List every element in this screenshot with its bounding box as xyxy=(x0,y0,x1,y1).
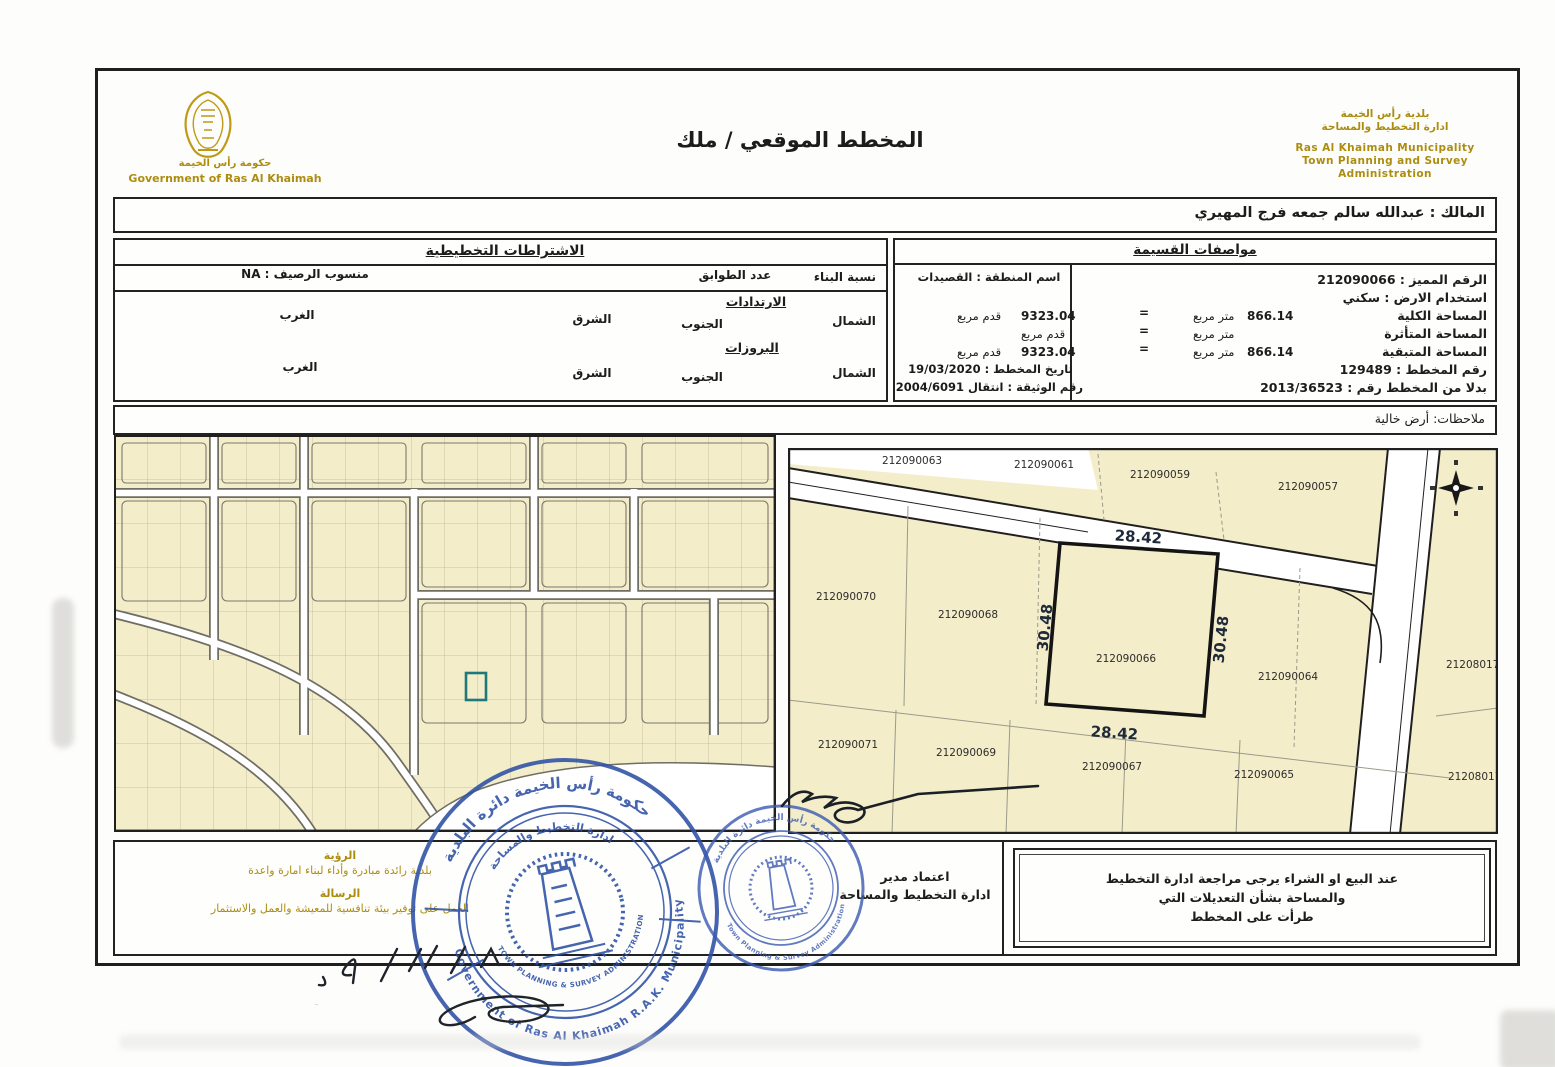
sale-note-line2: والمساحة بشأن التعديلات التي xyxy=(1020,888,1484,907)
remaining-area-label: المساحة المتبقية xyxy=(1382,344,1487,359)
municipality-en1: Ras Al Khaimah Municipality xyxy=(1230,142,1540,155)
owner-bar: المالك : عبدالله سالم جمعه فرج المهيري xyxy=(113,197,1497,233)
plot-212090061: 212090061 xyxy=(1014,459,1074,471)
col-floors: عدد الطوابق xyxy=(675,268,795,282)
municipality-ar1: بلدية رأس الخيمة xyxy=(1230,108,1540,121)
equals-1: = xyxy=(1139,306,1149,320)
plot-specifications-table: مواصفات القسيمة الرقم المميز : 212090066… xyxy=(893,238,1497,402)
municipality-header: بلدية رأس الخيمة ادارة التخطيط والمساحة … xyxy=(1230,108,1540,181)
setback-west: الغرب xyxy=(262,308,332,322)
affected-area-label: المساحة المتأثرة xyxy=(1384,326,1487,341)
subject-plot-highlight xyxy=(1046,543,1218,716)
dim-bottom: 28.42 xyxy=(1090,722,1139,743)
projections-heading: البروزات xyxy=(707,340,797,355)
logo-arabic-text: حكومة رأس الخيمة xyxy=(160,158,290,169)
plan-number: رقم المخطط : 129489 xyxy=(1340,362,1487,377)
sale-note-line3: طرأت على المخطط xyxy=(1020,907,1484,926)
equals-2: = xyxy=(1139,324,1149,338)
notes-bar: ملاحظات: أرض خالية xyxy=(113,405,1497,435)
handwritten-scribble-map xyxy=(768,770,1108,850)
plot-212090070: 212090070 xyxy=(816,591,876,603)
page-title: المخطط الموقعي / ملك xyxy=(630,128,970,152)
plot-212090066: 212090066 xyxy=(1096,653,1156,665)
setbacks-heading: الارتدادات xyxy=(711,294,801,309)
plot-212090071: 212090071 xyxy=(818,739,878,751)
sale-note-line1: عند البيع او الشراء يرجى مراجعة ادارة ال… xyxy=(1020,869,1484,888)
projection-south: الجنوب xyxy=(667,370,737,384)
total-area-ft2: 9323.04 xyxy=(1021,309,1076,323)
municipality-en3: Administration xyxy=(1230,168,1540,181)
scanned-site-plan-document: حكومة رأس الخيمة Government of Ras Al Kh… xyxy=(0,0,1555,1067)
plot-212080171: 212080171 xyxy=(1446,659,1498,671)
sqm-unit-1: متر مربع xyxy=(1193,309,1234,323)
document-number: رقم الوثيقة : انتقال 2004/6091 xyxy=(903,380,1083,394)
sale-note-box: عند البيع او الشراء يرجى مراجعة ادارة ال… xyxy=(1013,848,1491,948)
unique-number: الرقم المميز : 212090066 xyxy=(1317,272,1487,287)
equals-3: = xyxy=(1139,342,1149,356)
sqft-unit-1: قدم مربع xyxy=(957,309,1001,323)
setback-east: الشرق xyxy=(557,312,627,326)
col-pavement-level: منسوب الرصيف : NA xyxy=(215,267,395,281)
plot-212090063: 212090063 xyxy=(882,455,942,467)
replaces-plan: بدلا من المخطط رقم : 2013/36523 xyxy=(1260,380,1487,395)
area-name: اسم المنطقة : القصيدات xyxy=(909,270,1069,284)
projection-north: الشمال xyxy=(819,366,889,380)
municipality-ar2: ادارة التخطيط والمساحة xyxy=(1230,121,1540,134)
plot-212090069: 212090069 xyxy=(936,747,996,759)
projection-east: الشرق xyxy=(557,366,627,380)
col-building-ratio: نسبة البناء xyxy=(805,270,885,284)
projection-west: الغرب xyxy=(265,360,335,374)
gov-emblem: حكومة رأس الخيمة Government of Ras Al Kh… xyxy=(160,86,360,196)
plot-212080172: 212080172 xyxy=(1448,771,1498,783)
plot-212090065: 212090065 xyxy=(1234,769,1294,781)
remaining-area-ft2: 9323.04 xyxy=(1021,345,1076,359)
sqm-unit-3: متر مربع xyxy=(1193,345,1234,359)
logo-english-text: Government of Ras Al Khaimah xyxy=(105,172,345,185)
municipality-en2: Town Planning and Survey xyxy=(1230,155,1540,168)
setback-south: الجنوب xyxy=(667,317,737,331)
owner-name: المالك : عبدالله سالم جمعه فرج المهيري xyxy=(1194,205,1485,221)
specs-title: مواصفات القسيمة xyxy=(1095,242,1295,258)
planning-title: الاشتراطات التخطيطية xyxy=(395,243,615,259)
remaining-area-m2: 866.14 xyxy=(1247,345,1293,359)
falcon-emblem-icon xyxy=(186,92,231,157)
plan-date: تاريخ المخطط : 19/03/2020 xyxy=(903,362,1078,376)
planning-requirements-table: الاشتراطات التخطيطية نسبة البناء عدد الط… xyxy=(113,238,888,402)
land-use: استخدام الارض : سكني xyxy=(1343,290,1487,305)
sqm-unit-2: متر مربع xyxy=(1193,327,1234,341)
signature-loop xyxy=(440,996,563,1025)
setback-north: الشمال xyxy=(819,314,889,328)
handwritten-date-text: ٤/١١/٨ xyxy=(315,1004,318,1006)
stamp-small-tower-icon xyxy=(755,858,808,921)
total-area-m2: 866.14 xyxy=(1247,309,1293,323)
plot-212090057: 212090057 xyxy=(1278,481,1338,493)
plot-212090068: 212090068 xyxy=(938,609,998,621)
sqft-unit-3: قدم مربع xyxy=(957,345,1001,359)
dim-top: 28.42 xyxy=(1114,526,1163,547)
handwritten-date-signature: ٤/١١/٨ xyxy=(285,905,705,1055)
scan-artifact-left xyxy=(52,598,74,748)
notes-text: ملاحظات: أرض خالية xyxy=(1375,411,1485,426)
date-digit-8 xyxy=(481,949,499,967)
sqft-unit-2: قدم مربع xyxy=(1021,327,1065,341)
total-area-label: المساحة الكلية xyxy=(1397,308,1487,323)
plot-212090059: 212090059 xyxy=(1130,469,1190,481)
scan-artifact-bottom xyxy=(120,1035,1420,1049)
plot-212090064: 212090064 xyxy=(1258,671,1318,683)
scan-artifact-corner xyxy=(1500,1010,1555,1067)
